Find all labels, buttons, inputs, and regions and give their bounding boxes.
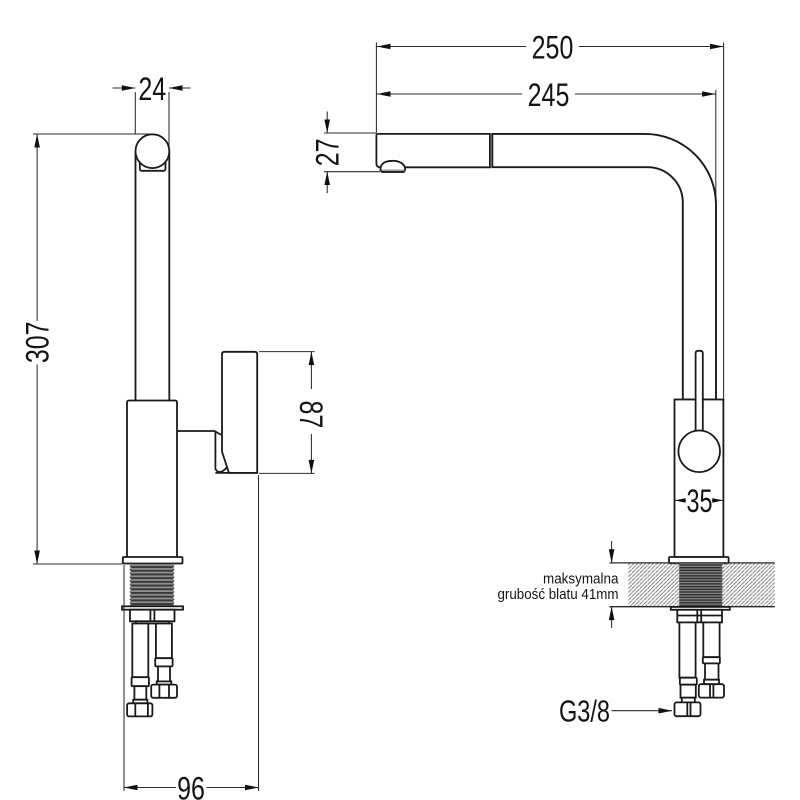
svg-text:96: 96 [177,770,205,800]
svg-text:245: 245 [528,77,570,113]
svg-text:27: 27 [310,139,346,167]
svg-text:250: 250 [532,29,574,65]
svg-text:87: 87 [293,401,329,429]
svg-text:35: 35 [687,483,713,519]
svg-text:307: 307 [19,321,55,363]
svg-text:grubość blatu 41mm: grubość blatu 41mm [498,586,619,603]
svg-text:maksymalna: maksymalna [543,570,619,587]
svg-text:24: 24 [138,71,166,107]
svg-text:G3/8: G3/8 [559,695,610,729]
